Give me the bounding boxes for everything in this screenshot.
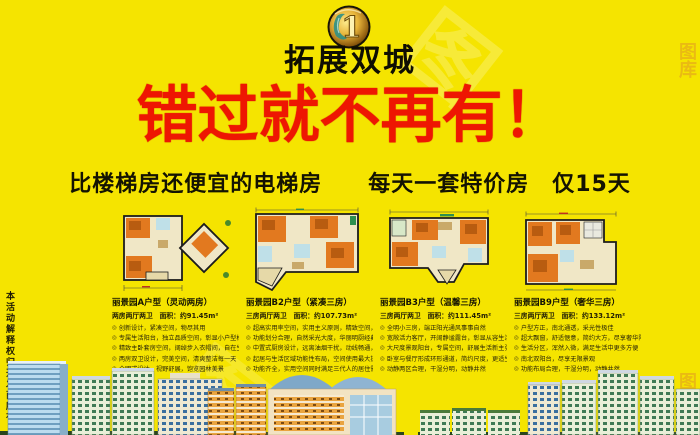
plan-feature: ◎中置式厨房设计，远离油烟干扰，动线畅通，生活便利 [246, 344, 373, 354]
plan-feature: ◎宽敞活力客厅，开阔静谧露台，彰显从容生活 [380, 334, 507, 344]
floor-plan-card-b9: 丽景园B9户型（奢华三房） 三房两厅两卫 面积：约133.12m² ◎户型方正，… [514, 206, 641, 375]
plan-feature-text: 超高实用率空间，实用主义原则，精致空间，合适生活 [253, 324, 373, 334]
thin-tower [528, 382, 560, 435]
plan-feature-text: 户型方正，南北通透，采光性极佳 [521, 324, 614, 334]
plan-feature-text: 全明小三房，端正阳光通风事事自然 [387, 324, 486, 334]
bullet-icon: ◎ [112, 334, 117, 344]
floor-plan-card-b2: 丽景园B2户型（紧凑三房） 三房两厅两卫 面积：约107.73m² ◎超高实用率… [246, 206, 373, 375]
plan-feature: ◎创新设计，紧凑空间，物尽其用 [112, 324, 239, 334]
plan-feature-text: 生活分区，浑然入微，满足生活中更多方便 [521, 344, 639, 354]
bullet-icon: ◎ [380, 334, 385, 344]
headline: 错过就不再有！ [0, 82, 700, 149]
plan-feature: ◎全明小三房，端正阳光通风事事自然 [380, 324, 507, 334]
lowrise-cluster [420, 408, 520, 435]
bullet-icon: ◎ [514, 344, 519, 354]
bullet-icon: ◎ [246, 344, 251, 354]
plan-feature-text: 专属生活阳台，独立品质空间，彰显小户型标准 [119, 334, 239, 344]
bullet-icon: ◎ [380, 324, 385, 334]
plan-title: 丽景园B2户型（紧凑三房） [246, 296, 373, 308]
brand-title: 拓展双城 [0, 45, 700, 78]
floor-plan-b3-drawing [380, 206, 507, 294]
floor-plan-b9-drawing [514, 206, 641, 294]
plan-feature: ◎精致主卧套房空间，阔绰步入衣帽间，自在生活随意切换 [112, 344, 239, 354]
plan-spec: 三房两厅两卫 面积：约133.12m² [514, 310, 641, 320]
dome-building [268, 375, 396, 435]
bullet-icon: ◎ [514, 324, 519, 334]
bullet-icon: ◎ [112, 344, 117, 354]
bullet-icon: ◎ [380, 344, 385, 354]
bullet-icon: ◎ [514, 334, 519, 344]
right-tower-cluster [562, 370, 700, 435]
plan-spec: 三房两厅两卫 面积：约111.45m² [380, 310, 507, 320]
orange-midrise [208, 384, 266, 435]
poster-root: 图 图 图库 图库 1 拓展双城 错过就不再有！ 比楼梯房还便宜的电梯房 每天一… [0, 0, 700, 435]
bullet-icon: ◎ [112, 324, 117, 334]
plan-spec: 三房两厅两卫 面积：约107.73m² [246, 310, 373, 320]
plan-feature-text: 大尺度景观阳台，专属空间，舒展生活新主张 [387, 344, 507, 354]
plan-feature: ◎超高实用率空间，实用主义原则，精致空间，合适生活 [246, 324, 373, 334]
plan-feature-text: 精致主卧套房空间，阔绰步入衣帽间，自在生活随意切换 [119, 344, 239, 354]
floor-plan-a-drawing [112, 206, 239, 294]
green-towers-left [72, 368, 154, 435]
plan-title: 丽景园B9户型（奢华三房） [514, 296, 641, 308]
plan-feature-text: 中置式厨房设计，远离油烟干扰，动线畅通，生活便利 [253, 344, 373, 354]
buildings-skyline-photo [0, 355, 700, 435]
plan-feature: ◎户型方正，南北通透，采光性极佳 [514, 324, 641, 334]
floor-plan-row: 丽景园A户型（灵动两房） 两房两厅两卫 面积：约91.45m² ◎创新设计，紧凑… [112, 206, 641, 375]
plan-feature: ◎功能划分合理，自然采光大度，华丽明厨经典 [246, 334, 373, 344]
subheadline: 比楼梯房还便宜的电梯房 每天一套特价房 仅15天 [0, 166, 700, 198]
plan-feature-text: 宽敞活力客厅，开阔静谧露台，彰显从容生活 [387, 334, 507, 344]
floor-plan-card-b3: 丽景园B3户型（温馨三房） 三房两厅两卫 面积：约111.45m² ◎全明小三房… [380, 206, 507, 375]
bullet-icon: ◎ [246, 324, 251, 334]
plan-feature: ◎大尺度景观阳台，专属空间，舒展生活新主张 [380, 344, 507, 354]
bullet-icon: ◎ [246, 334, 251, 344]
plan-spec: 两房两厅两卫 面积：约91.45m² [112, 310, 239, 320]
floor-plan-b2-drawing [246, 206, 373, 294]
floor-plan-card-a: 丽景园A户型（灵动两房） 两房两厅两卫 面积：约91.45m² ◎创新设计，紧凑… [112, 206, 239, 375]
plan-title: 丽景园B3户型（温馨三房） [380, 296, 507, 308]
plan-feature: ◎专属生活阳台，独立品质空间，彰显小户型标准 [112, 334, 239, 344]
plan-feature: ◎超大飘窗，舒适惬意，简约大方，尽享奢华阳台享受 [514, 334, 641, 344]
svg-text:1: 1 [341, 10, 361, 44]
plan-feature-text: 功能划分合理，自然采光大度，华丽明厨经典 [253, 334, 373, 344]
plan-feature-text: 创新设计，紧凑空间，物尽其用 [119, 324, 206, 334]
plan-title: 丽景园A户型（灵动两房） [112, 296, 239, 308]
plan-feature-text: 超大飘窗，舒适惬意，简约大方，尽享奢华阳台享受 [521, 334, 641, 344]
plan-feature: ◎生活分区，浑然入微，满足生活中更多方便 [514, 344, 641, 354]
glass-tower [8, 361, 68, 435]
